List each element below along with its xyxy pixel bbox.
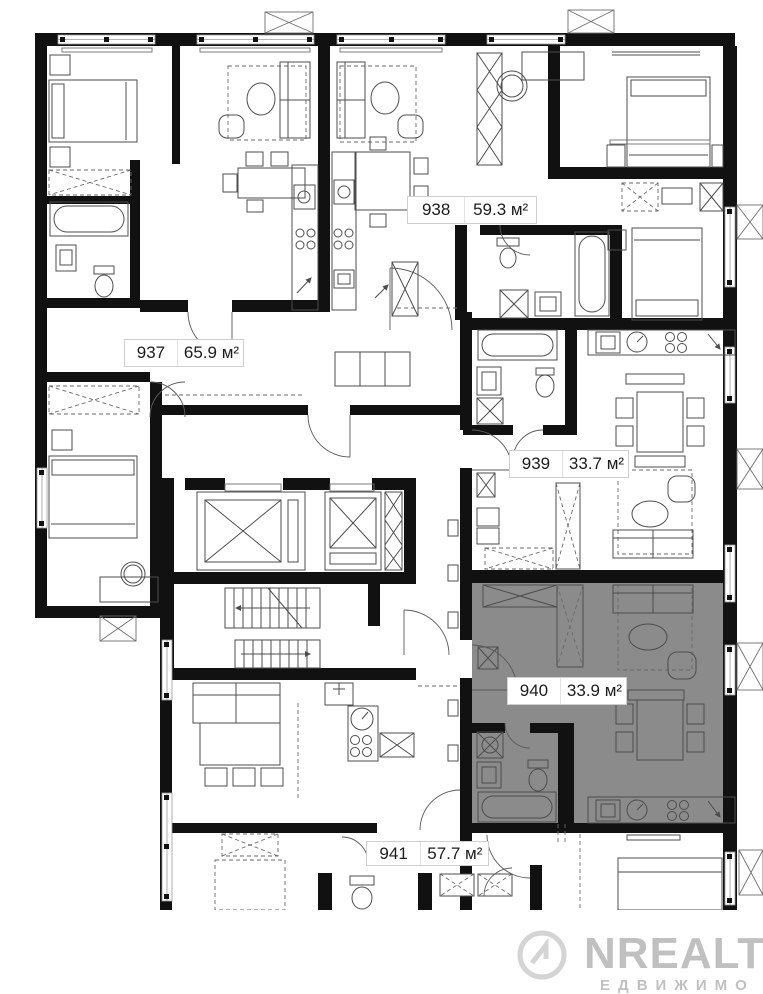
vent-box (737, 643, 763, 690)
unit-area: 33.7 м² (562, 451, 630, 477)
window (725, 545, 735, 602)
stove (296, 229, 315, 249)
window (725, 207, 735, 287)
oven-dial (351, 708, 373, 730)
bench (635, 456, 685, 467)
wardrobe (380, 733, 414, 757)
bathtub (478, 330, 557, 360)
nightstand (50, 147, 70, 167)
wardrobe (477, 53, 502, 165)
curtains (62, 48, 710, 144)
unit-area: 33.9 м² (560, 678, 628, 704)
bathtub (50, 202, 128, 236)
vent-shaft-column (385, 492, 402, 570)
sofa (193, 683, 280, 723)
bed-outline (215, 860, 285, 910)
unit-label-941[interactable]: 941 57.7 м² (366, 841, 489, 866)
desk (100, 577, 158, 602)
coffee-table (371, 82, 399, 114)
rug (618, 470, 692, 554)
chair (246, 152, 263, 166)
shoe-bench (477, 508, 499, 544)
fridge-arrow (708, 334, 720, 349)
unit-937-plan[interactable] (49, 55, 318, 602)
double-bed (632, 228, 702, 320)
console-table (626, 374, 684, 384)
stove (666, 333, 687, 353)
double-bed (49, 456, 137, 538)
chair (616, 426, 633, 446)
armchair (219, 115, 244, 138)
kitchen-counter (588, 330, 735, 355)
chair (271, 152, 288, 166)
chair (247, 200, 263, 212)
tv-stand (662, 188, 692, 204)
wardrobe (700, 183, 723, 211)
double-bed (627, 77, 710, 167)
chair (414, 158, 428, 174)
window (725, 852, 735, 905)
sink (56, 245, 76, 271)
vent-box (737, 449, 763, 489)
electric-arrow (375, 285, 388, 298)
chair (261, 768, 283, 786)
unit-area: 57.7 м² (420, 842, 488, 865)
oven-dial (627, 332, 647, 352)
unit-label-938[interactable]: 938 59.3 м² (407, 196, 537, 224)
curtain (627, 835, 680, 840)
wardrobe (622, 183, 658, 211)
window (37, 468, 47, 528)
unit-number: 941 (367, 842, 420, 865)
vent-box (737, 205, 763, 239)
corridor-bench (335, 352, 410, 386)
dining-table (637, 392, 683, 452)
unit-number: 938 (408, 197, 464, 223)
chair (223, 174, 237, 192)
chair (370, 214, 386, 227)
rug (340, 66, 416, 142)
wardrobe (478, 874, 512, 896)
vent-box (100, 616, 136, 641)
fridge-arrow (297, 278, 311, 293)
chair (687, 398, 704, 418)
vent-box (568, 10, 614, 33)
vent-box (739, 850, 763, 895)
watermark-subtitle: ЕДВИЖИМО (600, 977, 755, 994)
door-arc (487, 835, 530, 878)
window (162, 793, 172, 901)
window (725, 645, 735, 695)
floor-plan-page: { "units": [ {"number": "937", "area": "… (0, 0, 763, 910)
wardrobe (49, 386, 139, 414)
chair (370, 137, 386, 150)
floor-plan-drawing (0, 0, 763, 910)
sink (535, 292, 561, 316)
window (197, 35, 314, 44)
chair (205, 768, 227, 786)
stove (351, 736, 372, 757)
wardrobe (485, 548, 553, 569)
toilet (350, 876, 374, 909)
rug (228, 66, 306, 140)
stool (497, 71, 527, 101)
window (162, 640, 172, 700)
toilet (94, 266, 114, 297)
wardrobe (440, 874, 474, 896)
wardrobe (222, 834, 278, 856)
watermark-brand: NREALT (584, 929, 763, 979)
coffee-table (247, 83, 275, 115)
door-arc (308, 415, 350, 457)
toilet (497, 238, 519, 268)
staircase (225, 588, 320, 668)
curtain (612, 52, 700, 55)
armchair (398, 115, 423, 138)
window (487, 35, 565, 44)
unit-number: 937 (125, 340, 177, 366)
sink (477, 367, 501, 395)
window (337, 35, 445, 44)
washing-machine (500, 290, 528, 318)
stove (334, 229, 353, 249)
unit-label-940[interactable]: 940 33.9 м² (507, 677, 627, 705)
chair (616, 398, 633, 418)
door-arc (472, 430, 512, 470)
nightstand (50, 55, 70, 75)
corridor-radiators (448, 520, 458, 761)
microwave (334, 270, 354, 288)
chair (233, 768, 255, 786)
wardrobe (49, 170, 131, 195)
dining-table (355, 152, 410, 210)
door-arc (342, 837, 368, 863)
dining-table (238, 168, 305, 198)
dining-table (200, 723, 280, 765)
kitchen-sink (334, 180, 354, 204)
door-arc (404, 610, 449, 655)
nightstand (607, 145, 625, 167)
unit-number: 940 (508, 678, 560, 704)
door-arc (420, 790, 460, 830)
coffee-table (632, 501, 668, 527)
elevator-shaft-2 (325, 484, 381, 570)
unit-label-937[interactable]: 937 65.9 м² (124, 339, 244, 367)
sofa (337, 62, 365, 138)
unit-938-plan[interactable] (332, 52, 723, 320)
unit-area: 65.9 м² (177, 340, 245, 366)
armchair (668, 476, 695, 502)
washing-machine (477, 398, 503, 424)
nightstand (52, 430, 72, 450)
double-bed (49, 80, 137, 142)
chair (687, 426, 704, 446)
nightstand (712, 145, 723, 167)
kitchen-sink (596, 332, 620, 353)
kitchen-sink (325, 683, 353, 705)
wardrobe-tall (556, 483, 580, 569)
bathtub (575, 232, 609, 316)
round-table (121, 562, 145, 586)
vent-box (265, 12, 313, 33)
unit-label-939[interactable]: 939 33.7 м² (509, 450, 629, 478)
elevator-shaft-1 (197, 484, 305, 570)
sofa (280, 62, 310, 138)
watermark-logo-icon (516, 929, 568, 981)
unit-area: 59.3 м² (464, 197, 536, 223)
toilet (536, 368, 554, 397)
double-bed (618, 858, 722, 910)
unit-number: 939 (510, 451, 562, 477)
window (58, 35, 155, 44)
shaft-box (477, 473, 495, 497)
